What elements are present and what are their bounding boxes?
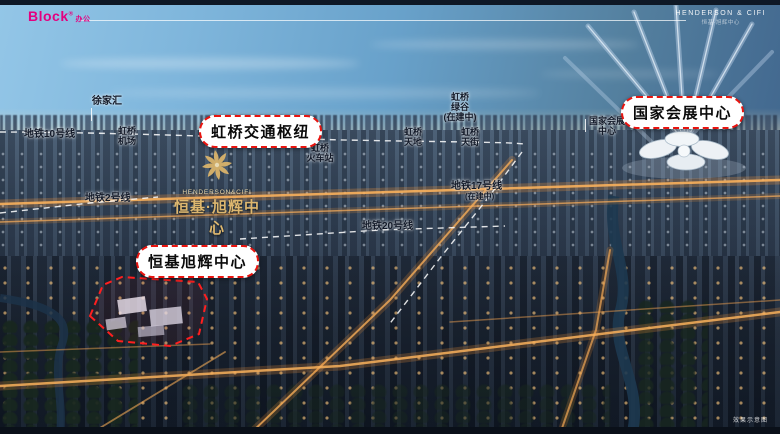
label-line: (在建中) bbox=[438, 112, 482, 122]
callout-hongqiao-transport-hub: 虹桥交通枢纽 bbox=[199, 115, 322, 148]
label-line: 天地 bbox=[401, 137, 425, 147]
block-logo-sub: 办公 bbox=[76, 16, 91, 23]
label-line: 国家会展 bbox=[588, 116, 626, 126]
label-line: 天街 bbox=[458, 137, 482, 147]
label-hongqiao-paradise-walk: 虹桥 天街 bbox=[458, 127, 482, 147]
brand-name-cn: 恒基·旭辉中心 bbox=[675, 18, 766, 26]
label-line: 虹桥 bbox=[116, 126, 138, 136]
label-metro-line-10: 地铁10号线 bbox=[24, 129, 75, 140]
project-watermark-logo: HENDERSON&CIFI 恒基·旭辉中心 bbox=[168, 147, 266, 238]
label-line: 中心 bbox=[588, 126, 626, 136]
label-metro-line-17-note: (在建中) bbox=[465, 192, 494, 201]
label-line: 虹桥 bbox=[458, 127, 482, 137]
aerial-render-slide: 徐家汇 地铁10号线 虹桥 机场 地铁2号线 虹桥 火车站 虹桥 天地 虹桥 绿… bbox=[0, 0, 780, 434]
pinwheel-logo-icon bbox=[199, 147, 235, 183]
leader-line-necc bbox=[585, 119, 586, 132]
project-site-outline bbox=[90, 277, 207, 346]
river-right bbox=[612, 196, 634, 434]
map-overlay bbox=[0, 0, 780, 434]
block-logo: Block®办公 bbox=[28, 8, 91, 24]
top-letterbox-bar bbox=[0, 0, 780, 5]
label-necc-small: 国家会展 中心 bbox=[588, 116, 626, 136]
registered-mark: ® bbox=[69, 11, 74, 17]
label-hongqiao-tiandi: 虹桥 天地 bbox=[401, 127, 425, 147]
label-line: 绿谷 bbox=[438, 102, 482, 112]
label-line: 虹桥 bbox=[401, 127, 425, 137]
label-xujiahui: 徐家汇 bbox=[92, 96, 122, 107]
render-disclaimer: 效果示意图 bbox=[733, 415, 768, 424]
label-metro-line-20: 地铁20号线 bbox=[362, 221, 413, 232]
callout-national-exhibition-center: 国家会展中心 bbox=[621, 96, 744, 129]
block-logo-text: Block bbox=[28, 8, 69, 24]
label-line: 火车站 bbox=[303, 153, 337, 163]
bottom-letterbox-bar bbox=[0, 427, 780, 434]
necc-building bbox=[622, 132, 746, 180]
project-logo-en: HENDERSON&CIFI bbox=[168, 189, 266, 196]
callout-henderson-cifi-center: 恒基旭辉中心 bbox=[136, 245, 259, 278]
label-hongqiao-airport: 虹桥 机场 bbox=[116, 126, 138, 146]
label-hongqiao-green-valley: 虹桥 绿谷 (在建中) bbox=[438, 92, 482, 122]
brand-name-en: HENDERSON & CIFI bbox=[675, 10, 766, 17]
label-line: 虹桥 bbox=[438, 92, 482, 102]
canal-left bbox=[0, 298, 64, 434]
label-metro-line-17: 地铁17号线 bbox=[451, 181, 502, 192]
label-metro-line-2: 地铁2号线 bbox=[85, 193, 131, 204]
project-logo-cn: 恒基·旭辉中心 bbox=[168, 196, 266, 238]
metro-dashed-line-17 bbox=[388, 152, 522, 326]
label-line: 机场 bbox=[116, 136, 138, 146]
leader-line-xujiahui bbox=[91, 108, 92, 121]
developer-brand-logo: HENDERSON & CIFI 恒基·旭辉中心 bbox=[675, 10, 766, 26]
header-divider-line bbox=[80, 20, 686, 21]
